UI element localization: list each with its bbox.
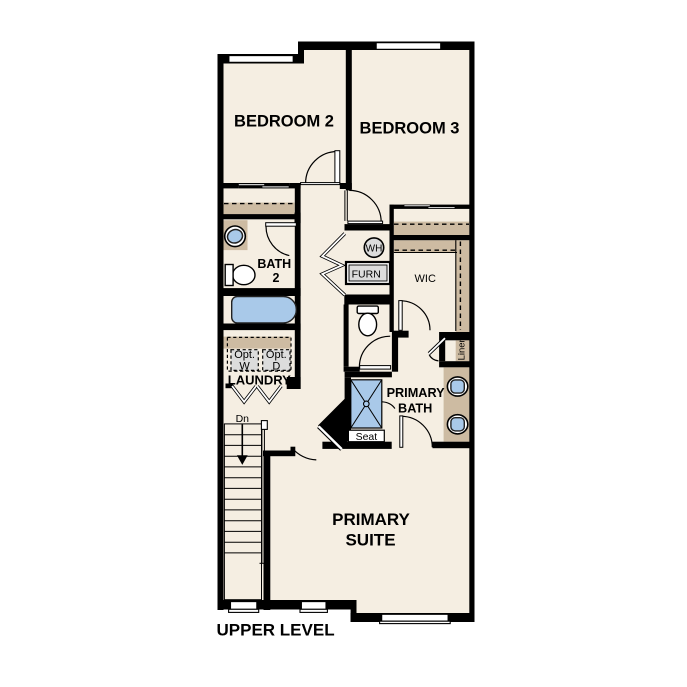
svg-text:WIC: WIC (415, 273, 436, 285)
svg-text:2: 2 (273, 271, 280, 285)
svg-text:D: D (272, 360, 280, 372)
svg-text:Linen: Linen (456, 337, 467, 360)
svg-text:BEDROOM 3: BEDROOM 3 (360, 119, 460, 137)
svg-text:PRIMARY: PRIMARY (332, 510, 410, 529)
svg-text:PRIMARY: PRIMARY (387, 386, 446, 400)
svg-text:LAUNDRY: LAUNDRY (228, 372, 291, 387)
svg-text:FURN: FURN (352, 269, 381, 281)
svg-text:BEDROOM 2: BEDROOM 2 (234, 112, 334, 130)
svg-text:BATH: BATH (398, 402, 432, 416)
svg-text:Seat: Seat (356, 431, 378, 443)
svg-text:W: W (239, 360, 250, 372)
svg-text:Dn: Dn (236, 413, 250, 425)
svg-text:WH: WH (366, 243, 383, 254)
svg-text:BATH: BATH (257, 257, 291, 271)
svg-text:UPPER LEVEL: UPPER LEVEL (217, 620, 335, 639)
svg-text:SUITE: SUITE (345, 530, 395, 549)
